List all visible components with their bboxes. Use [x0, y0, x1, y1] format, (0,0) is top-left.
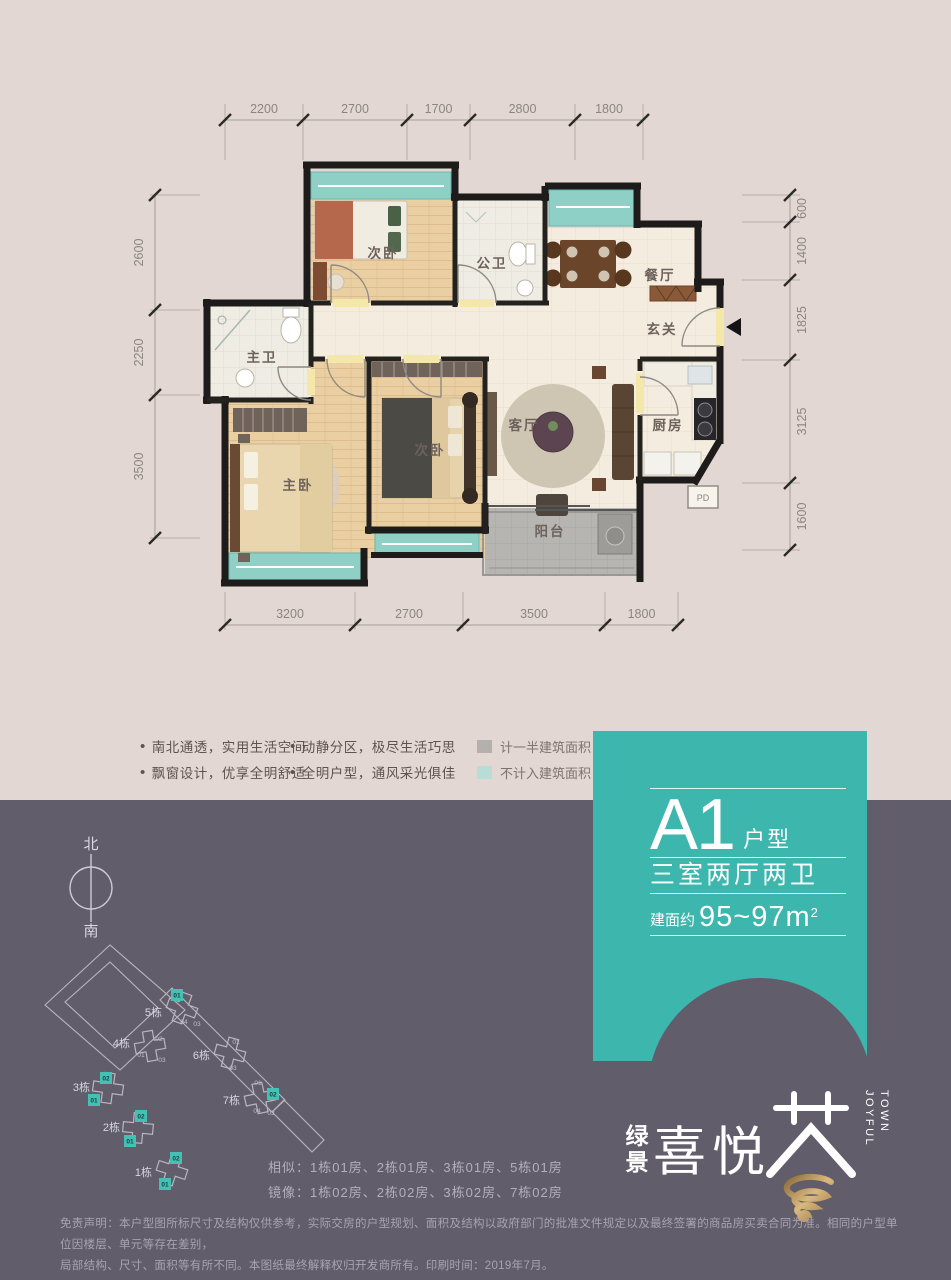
entry-door [716, 308, 724, 346]
dimension-label: 1800 [595, 102, 623, 116]
wardrobe-master [233, 408, 307, 432]
area-value: 95~97m [699, 904, 811, 930]
legend-swatch-gray [477, 740, 492, 753]
legend-label: 不计入建筑面积 [500, 763, 591, 782]
room-label-balcony: 阳台 [535, 523, 566, 539]
dimension-label: 2800 [509, 102, 537, 116]
room-label-kitchen: 厨房 [653, 417, 684, 433]
unit-number: 04 [180, 1019, 188, 1026]
floorplan-poster: 次卧 公卫 餐厅 玄关 主卫 次卧 客厅 厨房 主卧 阳台 PD 2200270… [0, 0, 951, 1280]
dimension-label: 3200 [276, 607, 304, 621]
unit-number: 01 [254, 1080, 262, 1087]
selling-point: •南北通透，实用生活空间 [140, 733, 290, 759]
unit-area-row: 建面约 95~97m 2 [650, 894, 846, 935]
building-label: 7栋 [223, 1093, 240, 1107]
building-label: 3栋 [73, 1080, 90, 1094]
building-label: 2栋 [103, 1120, 120, 1134]
compass-north-label: 北 [83, 836, 98, 853]
dining-chair [615, 242, 632, 259]
dimension-label: 1400 [795, 237, 809, 265]
similar-units-note: 相似：1栋01房、2栋01房、3栋01房、5栋01房 [268, 1155, 563, 1180]
room-label-living: 客厅 [508, 417, 540, 433]
unit-code-row: A1 户型 [650, 789, 846, 857]
building-label: 1栋 [135, 1165, 152, 1179]
logo-english-2: TOWN [878, 1090, 890, 1133]
dimension-label: 3125 [795, 408, 809, 436]
unit-number: 03 [193, 1021, 201, 1028]
legend-label: 计一半建筑面积 [500, 737, 591, 756]
dining-chair [615, 270, 632, 287]
kitchen-sink [688, 366, 712, 384]
room-label-master-bath: 主卫 [247, 349, 278, 365]
unit-number: 04 [253, 1108, 261, 1115]
building-label: 6栋 [193, 1048, 210, 1062]
compass-south-label: 南 [83, 923, 98, 938]
desk-bedroom2 [313, 262, 327, 300]
dimension-label: 2600 [132, 239, 146, 267]
disclaimer-line2: 局部结构、尺寸、面积等有所不同。本图纸最终解释权归开发商所有。印刷时间：2019… [60, 1256, 908, 1277]
room-label-dining: 餐厅 [644, 267, 676, 283]
area-prefix: 建面约 [650, 909, 695, 930]
brand-logo: 绿 景 喜悦 JOYFUL TOWN [598, 1078, 898, 1228]
dimension-label: 3500 [132, 453, 146, 481]
area-legend: 计一半建筑面积 不计入建筑面积 [477, 733, 591, 785]
selling-points: •南北通透，实用生活空间 •动静分区，极尽生活巧思 •飘窗设计，优享全明舒适 •… [140, 733, 510, 785]
area-superscript: 2 [811, 905, 818, 920]
disclaimer: 免责声明：本户型图所标尺寸及结构仅供参考，实际交房的户型规划、面积及结构以政府部… [60, 1214, 908, 1277]
logo-brand-char1: 绿 [626, 1123, 650, 1149]
dimension-label: 2700 [341, 102, 369, 116]
entry-arrow-icon [726, 318, 741, 336]
toilet-master-bath [281, 317, 301, 343]
siteplan-building: 2栋0201 [103, 1110, 154, 1147]
unit-number: 02 [269, 1092, 277, 1099]
floorplan-drawing: 次卧 公卫 餐厅 玄关 主卫 次卧 客厅 厨房 主卧 阳台 PD 2200270… [0, 0, 951, 665]
logo-english-1: JOYFUL [863, 1090, 875, 1147]
unit-number: 01 [90, 1098, 98, 1105]
unit-layout: 三室两厅两卫 [650, 858, 846, 893]
logo-glyph-icon [770, 1094, 852, 1219]
room-label-master: 主卧 [283, 477, 314, 493]
siteplan-building: 6栋0103 [193, 1035, 248, 1072]
bullet-icon: • [140, 739, 146, 754]
unit-notes: 相似：1栋01房、2栋01房、3栋01房、5栋01房 镜像：1栋02房、2栋02… [268, 1155, 563, 1205]
logo-brand-char2: 景 [626, 1149, 649, 1175]
selling-point-text: 动静分区，极尽生活巧思 [302, 736, 456, 756]
unit-number: 02 [102, 1076, 110, 1083]
sink-master-bath [236, 369, 254, 387]
unit-number: 02 [137, 1114, 145, 1121]
room-label-bedroom3: 次卧 [415, 442, 446, 458]
dimension-label: 1700 [425, 102, 453, 116]
unit-number: 02 [155, 1036, 163, 1043]
dimension-label: 600 [795, 198, 809, 219]
building-label: 5栋 [145, 1005, 162, 1019]
gold-spiral-icon [787, 1177, 831, 1219]
dimension-label: 1600 [795, 503, 809, 531]
unit-number: 03 [267, 1110, 275, 1117]
unit-number: 01 [161, 1182, 169, 1189]
unit-number: 01 [137, 1052, 145, 1059]
selling-point: •飘窗设计，优享全明舒适 [140, 759, 290, 785]
unit-code: A1 [650, 794, 734, 857]
unit-number: 02 [172, 1156, 180, 1163]
dining-table [560, 240, 616, 288]
logo-name: 喜悦 [653, 1123, 771, 1182]
legend-row-excluded-area: 不计入建筑面积 [477, 759, 591, 785]
unit-number: 03 [229, 1065, 237, 1072]
legend-swatch-teal [477, 766, 492, 779]
dimension-label: 2700 [395, 607, 423, 621]
room-label-public-bath: 公卫 [477, 256, 508, 271]
sink-public-bath [517, 280, 533, 296]
legend-row-half-area: 计一半建筑面积 [477, 733, 591, 759]
tv-bench [487, 392, 497, 476]
mirror-units-note: 镜像：1栋02房、2栋02房、3栋02房、7栋02房 [268, 1180, 563, 1205]
room-label-bedroom2: 次卧 [368, 245, 399, 261]
dimension-label: 3500 [520, 607, 548, 621]
siteplan-building: 3栋0201 [73, 1071, 125, 1106]
room-label-entry: 玄关 [647, 321, 678, 337]
card-divider [650, 935, 846, 936]
siteplan-podium [45, 945, 185, 1070]
bullet-icon: • [290, 765, 296, 780]
room-label-pd: PD [697, 493, 710, 503]
unit-code-suffix: 户型 [743, 822, 791, 854]
dimension-label: 2250 [132, 339, 146, 367]
selling-point-text: 飘窗设计，优享全明舒适 [152, 762, 306, 782]
unit-number: 01 [173, 993, 181, 1000]
building-label: 4栋 [113, 1036, 130, 1050]
unit-number: 03 [158, 1057, 166, 1064]
bullet-icon: • [290, 739, 296, 754]
bullet-icon: • [140, 765, 146, 780]
toilet-public-bath [509, 242, 527, 266]
compass: 北 南 [56, 834, 126, 938]
dimension-label: 2200 [250, 102, 278, 116]
siteplan-strip-building [160, 988, 324, 1152]
unit-number: 01 [232, 1039, 240, 1046]
disclaimer-line1: 免责声明：本户型图所标尺寸及结构仅供参考，实际交房的户型规划、面积及结构以政府部… [60, 1214, 908, 1256]
dimension-label: 1825 [795, 306, 809, 334]
siteplan-building: 1栋0201 [135, 1151, 191, 1190]
selling-point-text: 南北通透，实用生活空间 [152, 736, 306, 756]
unit-card-content: A1 户型 三室两厅两卫 建面约 95~97m 2 [650, 788, 846, 936]
dimension-label: 1800 [628, 607, 656, 621]
selling-point-text: 全明户型，通风采光俱佳 [302, 762, 456, 782]
unit-number: 01 [126, 1139, 134, 1146]
